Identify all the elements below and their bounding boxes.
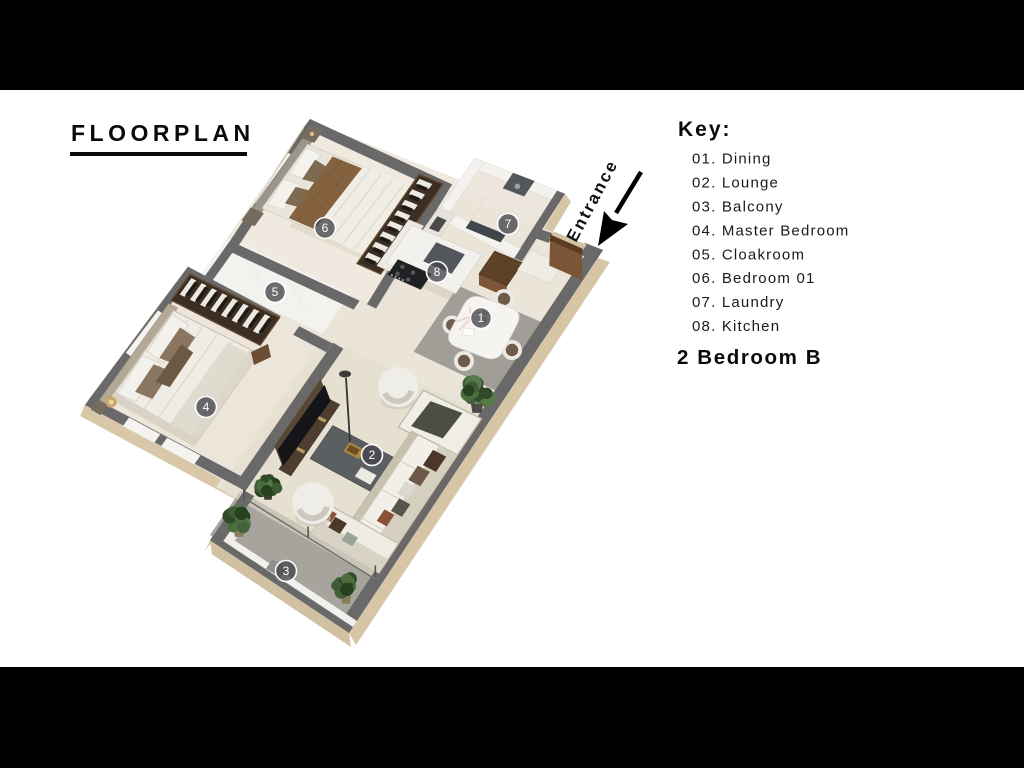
svg-text:03. Balcony: 03. Balcony [692, 199, 784, 216]
svg-text:3: 3 [283, 564, 290, 578]
svg-text:5: 5 [272, 285, 279, 299]
svg-text:04. Master Bedroom: 04. Master Bedroom [692, 222, 850, 239]
svg-text:FLOORPLAN: FLOORPLAN [71, 120, 255, 146]
svg-text:07. Laundry: 07. Laundry [692, 294, 784, 311]
svg-text:4: 4 [203, 400, 210, 414]
svg-text:7: 7 [505, 217, 512, 231]
svg-text:2 Bedroom B: 2 Bedroom B [677, 346, 822, 369]
svg-text:08. Kitchen: 08. Kitchen [692, 318, 780, 335]
svg-text:8: 8 [434, 265, 441, 279]
svg-text:6: 6 [322, 221, 329, 235]
svg-text:01. Dining: 01. Dining [692, 151, 772, 168]
svg-text:05. Cloakroom: 05. Cloakroom [692, 246, 805, 263]
svg-text:Key:: Key: [678, 118, 732, 141]
svg-text:1: 1 [478, 311, 485, 325]
svg-text:2: 2 [369, 448, 376, 462]
svg-text:02. Lounge: 02. Lounge [692, 175, 779, 192]
svg-text:06. Bedroom 01: 06. Bedroom 01 [692, 270, 816, 287]
